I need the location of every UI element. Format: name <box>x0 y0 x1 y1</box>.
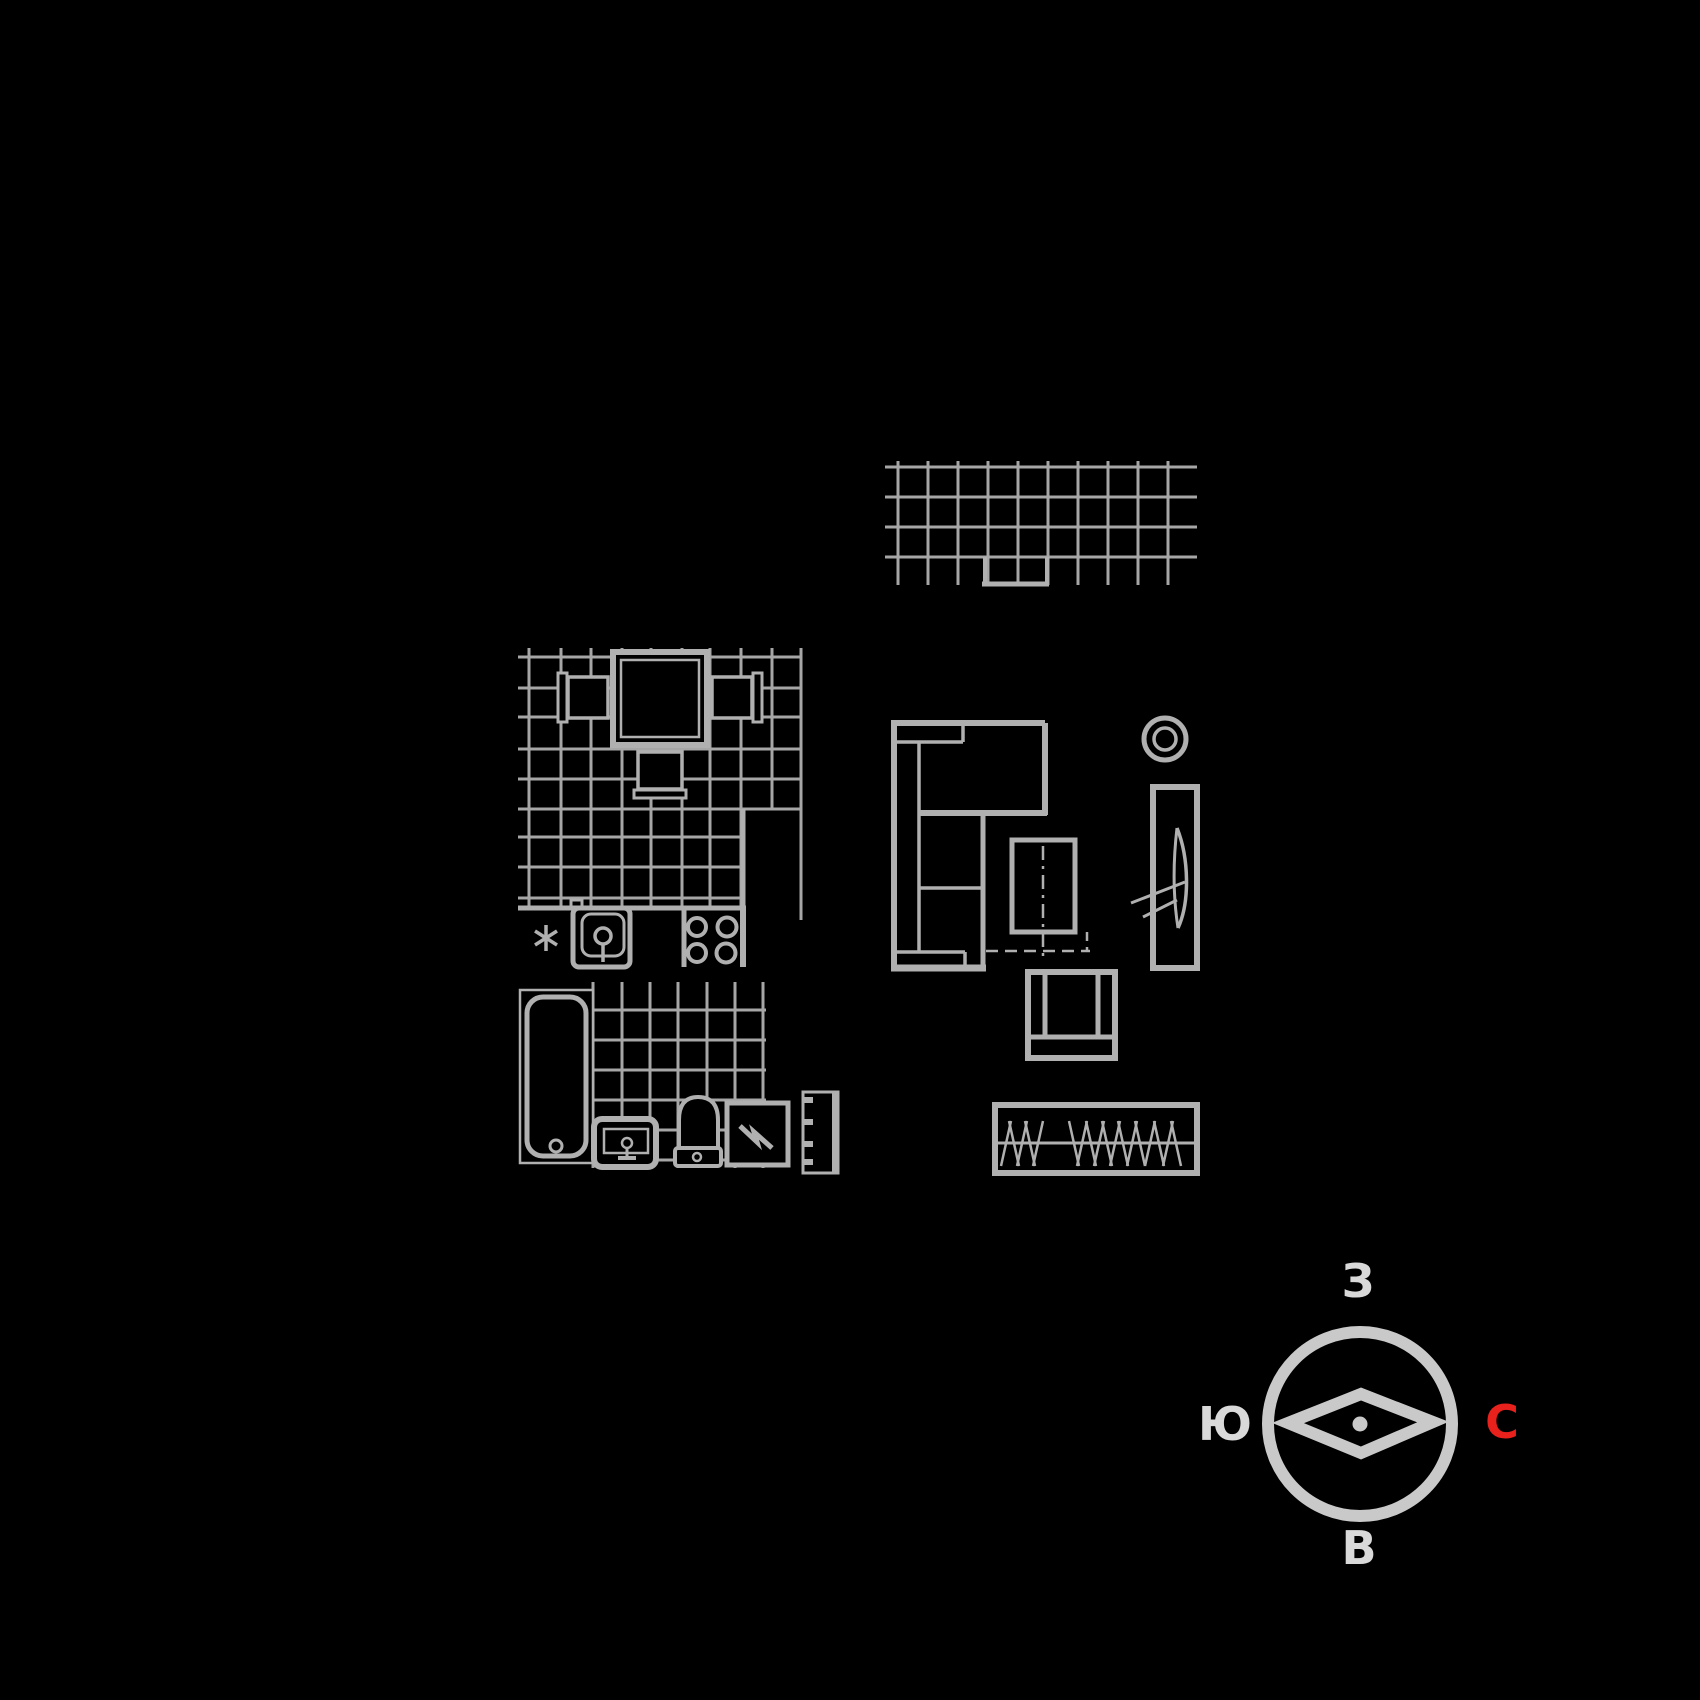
bathtub <box>520 990 593 1163</box>
compass-label-north: С <box>1485 1395 1519 1449</box>
compass-label-south: Ю <box>1198 1397 1252 1451</box>
toilet <box>675 1097 721 1166</box>
kitchen-table <box>613 652 707 745</box>
water-heater <box>727 1103 788 1165</box>
armchair <box>1028 972 1115 1058</box>
compass-center-dot <box>1353 1417 1368 1432</box>
floor-plan-canvas: З Ю С В <box>0 0 1700 1700</box>
compass-label-east: В <box>1341 1521 1376 1575</box>
kitchen-sink <box>573 908 630 967</box>
kitchen-chair-right <box>712 673 762 722</box>
washbasin <box>594 1119 656 1167</box>
compass-label-west: З <box>1342 1254 1375 1308</box>
kitchen-chair-left <box>558 673 608 722</box>
kitchen-chair-bottom <box>634 752 686 798</box>
